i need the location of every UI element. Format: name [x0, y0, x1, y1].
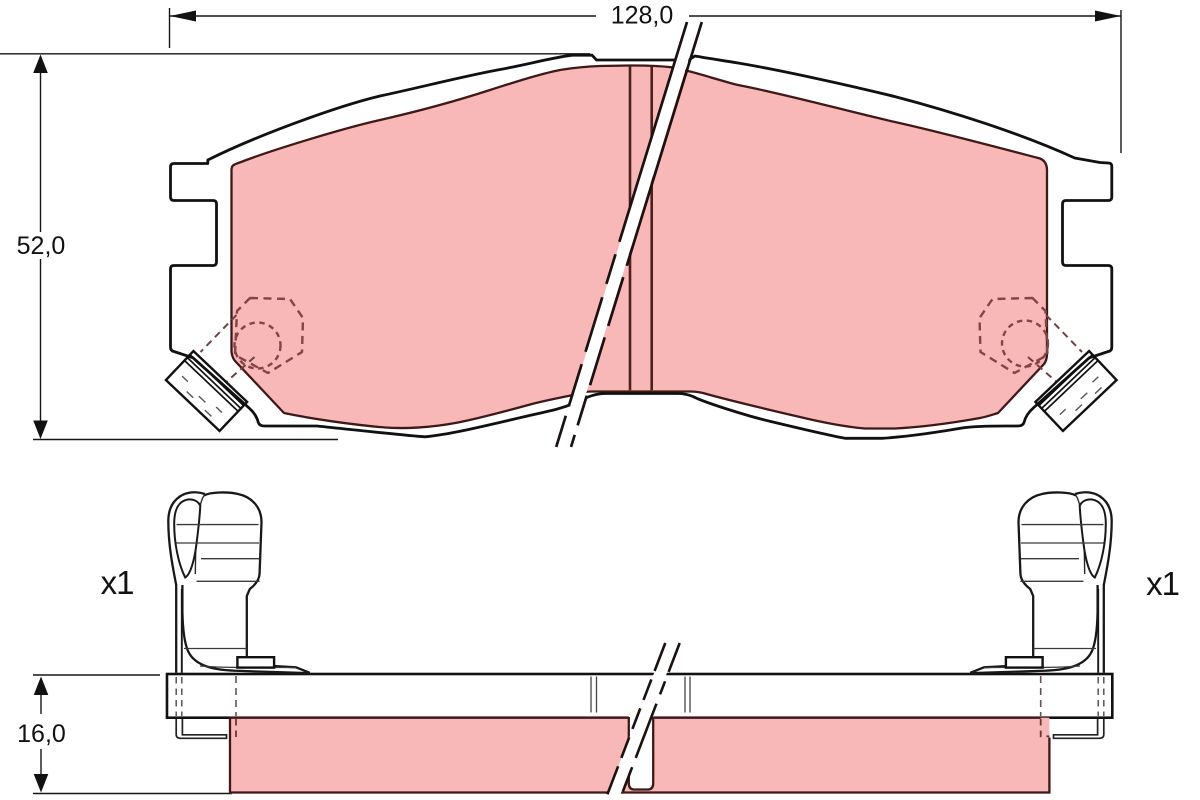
svg-text:128,0: 128,0 [611, 2, 674, 30]
svg-text:x1: x1 [1146, 565, 1179, 602]
svg-text:16,0: 16,0 [17, 720, 66, 748]
svg-text:x1: x1 [101, 564, 134, 601]
svg-text:52,0: 52,0 [17, 232, 66, 260]
